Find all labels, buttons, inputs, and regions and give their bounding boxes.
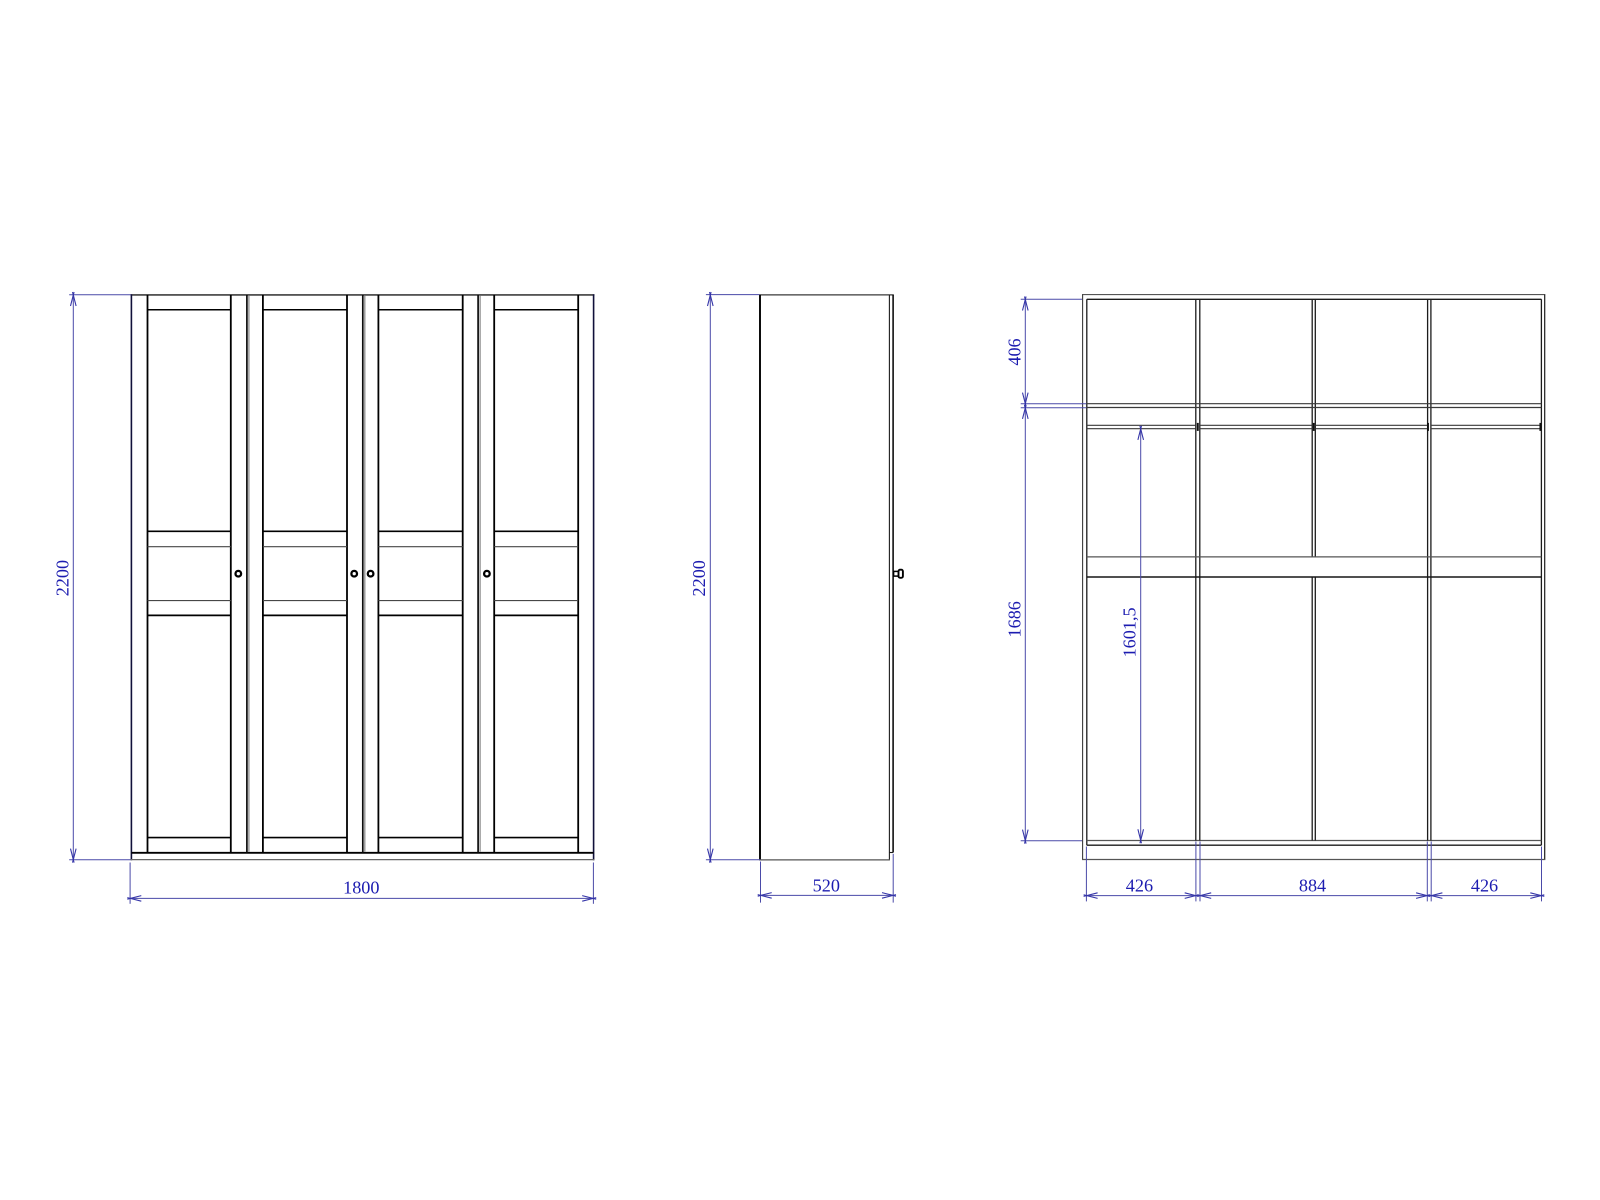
svg-text:1601,5: 1601,5 bbox=[1120, 607, 1140, 657]
svg-text:2200: 2200 bbox=[53, 560, 73, 596]
svg-text:426: 426 bbox=[1126, 875, 1153, 895]
svg-text:1800: 1800 bbox=[343, 878, 379, 898]
svg-text:2200: 2200 bbox=[689, 560, 709, 596]
svg-text:406: 406 bbox=[1005, 338, 1025, 365]
svg-text:884: 884 bbox=[1299, 875, 1326, 895]
svg-text:426: 426 bbox=[1471, 875, 1498, 895]
svg-text:520: 520 bbox=[813, 876, 840, 896]
svg-text:1686: 1686 bbox=[1005, 601, 1025, 637]
